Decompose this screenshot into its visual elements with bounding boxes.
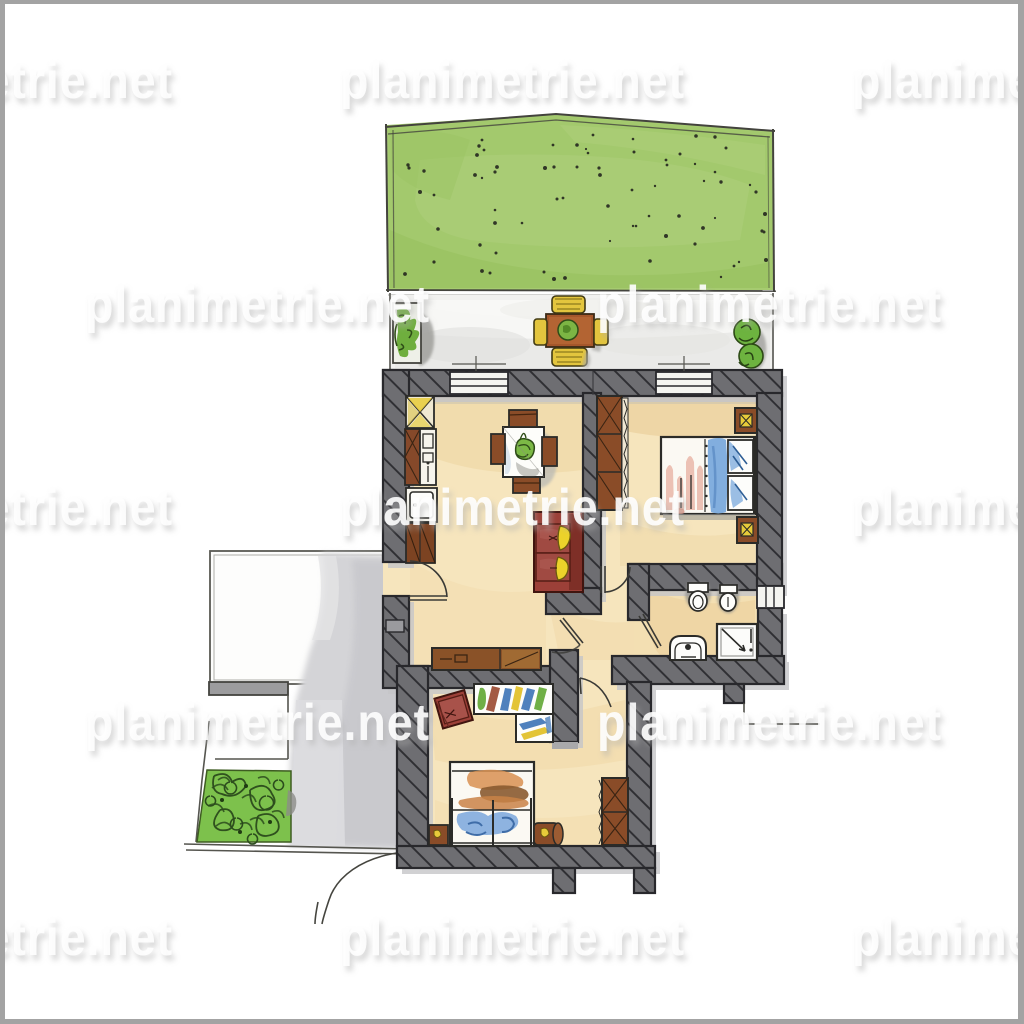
svg-text:planimetrie.net: planimetrie.net bbox=[0, 909, 173, 967]
svg-text:planimetrie.net: planimetrie.net bbox=[852, 479, 1024, 537]
svg-text:planimetrie.net: planimetrie.net bbox=[852, 52, 1024, 110]
svg-text:planimetrie.net: planimetrie.net bbox=[852, 909, 1024, 967]
svg-text:planimetrie.net: planimetrie.net bbox=[85, 276, 430, 334]
svg-text:planimetrie.net: planimetrie.net bbox=[340, 909, 685, 967]
svg-text:planimetrie.net: planimetrie.net bbox=[597, 276, 942, 334]
svg-text:planimetrie.net: planimetrie.net bbox=[0, 52, 173, 110]
svg-text:planimetrie.net: planimetrie.net bbox=[0, 479, 173, 537]
svg-text:planimetrie.net: planimetrie.net bbox=[340, 479, 685, 537]
svg-text:planimetrie.net: planimetrie.net bbox=[597, 694, 942, 752]
svg-text:planimetrie.net: planimetrie.net bbox=[85, 694, 430, 752]
svg-text:planimetrie.net: planimetrie.net bbox=[340, 52, 685, 110]
